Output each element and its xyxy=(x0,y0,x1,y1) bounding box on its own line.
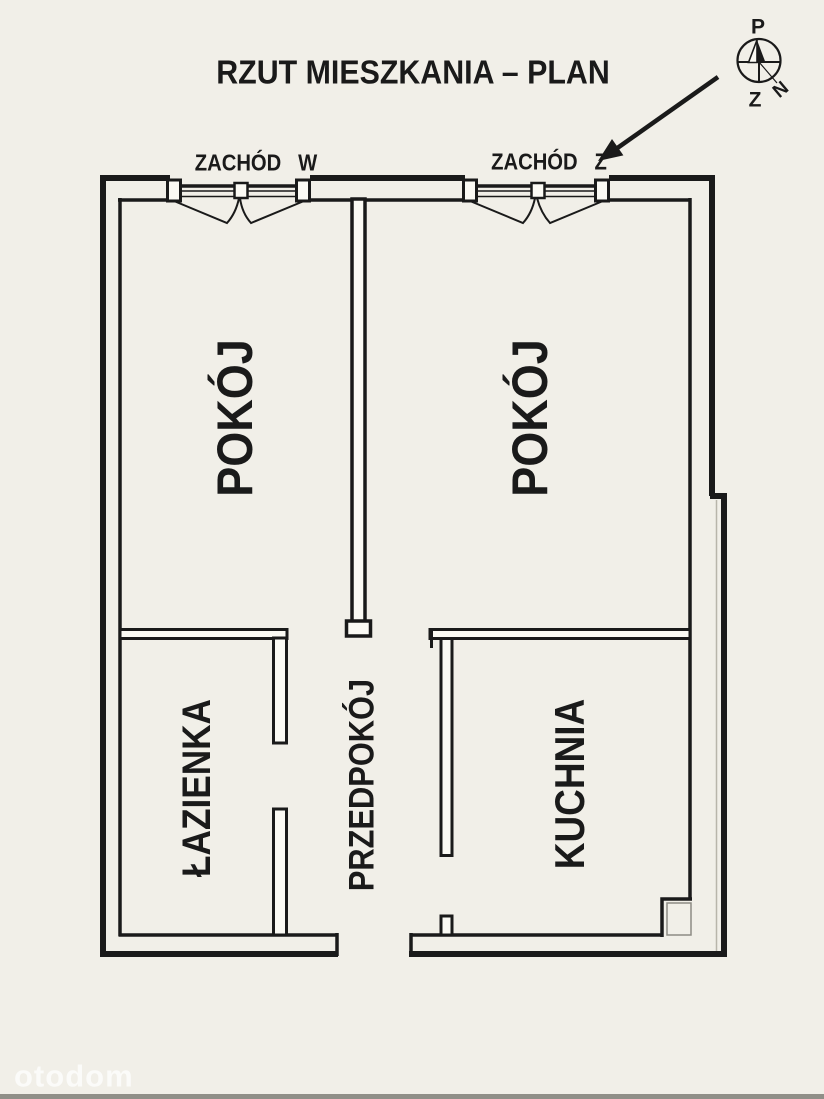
room-label-bathroom: ŁAZIENKA xyxy=(177,699,217,877)
shaft xyxy=(667,903,691,935)
room-label-kitchen: KUCHNIA xyxy=(549,699,591,869)
compass-rose xyxy=(738,39,781,83)
window-right xyxy=(464,180,609,223)
watermark-otodom: otodom xyxy=(14,1061,134,1092)
room-label-hallway: PRZEDPOKÓJ xyxy=(345,679,380,891)
compass-label-p: P xyxy=(751,17,765,38)
room-label-right: POKÓJ xyxy=(505,339,555,497)
compass-label-z: Z xyxy=(749,90,762,111)
plan-title: RZUT MIESZKANIA – PLAN xyxy=(216,56,610,89)
partition-wall-rooms xyxy=(347,199,371,636)
floor-plan: RZUT MIESZKANIA – PLAN P Z N ZACHÓD W ZA… xyxy=(0,0,824,1099)
window-left xyxy=(168,180,310,223)
floor-plan-drawing xyxy=(0,0,824,1099)
direction-arrow xyxy=(598,77,718,161)
image-bottom-edge xyxy=(0,1094,824,1099)
window-label-west-w: ZACHÓD W xyxy=(195,152,318,175)
room-label-left: POKÓJ xyxy=(210,339,260,497)
window-label-west-z: ZACHÓD Z xyxy=(491,151,607,174)
